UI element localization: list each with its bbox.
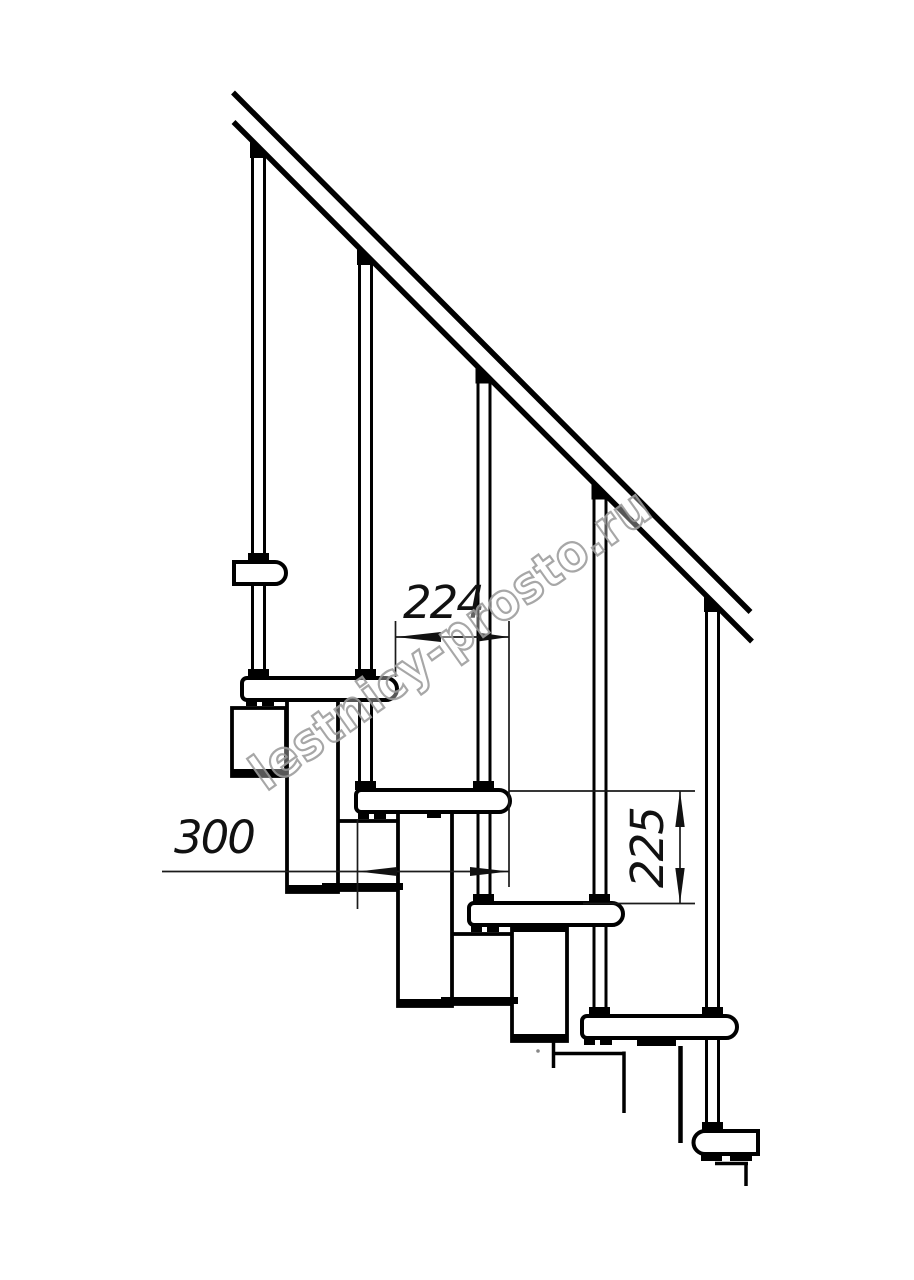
floor-bracket-bottom (694, 1131, 759, 1154)
support-strut-2 (398, 812, 452, 1006)
support-strut-3 (512, 925, 567, 1041)
tread-4 (582, 1016, 737, 1038)
tread-3 (469, 903, 623, 925)
staircase-elevation-drawing: 224 300 225 lestnicy-prosto.ru (0, 0, 914, 1280)
stray-dot (536, 1049, 540, 1053)
tread-2 (356, 790, 510, 812)
dimension-label-rise: 225 (621, 808, 674, 888)
handrail-bracket-top (234, 562, 286, 584)
dimension-label-depth: 300 (174, 811, 254, 864)
